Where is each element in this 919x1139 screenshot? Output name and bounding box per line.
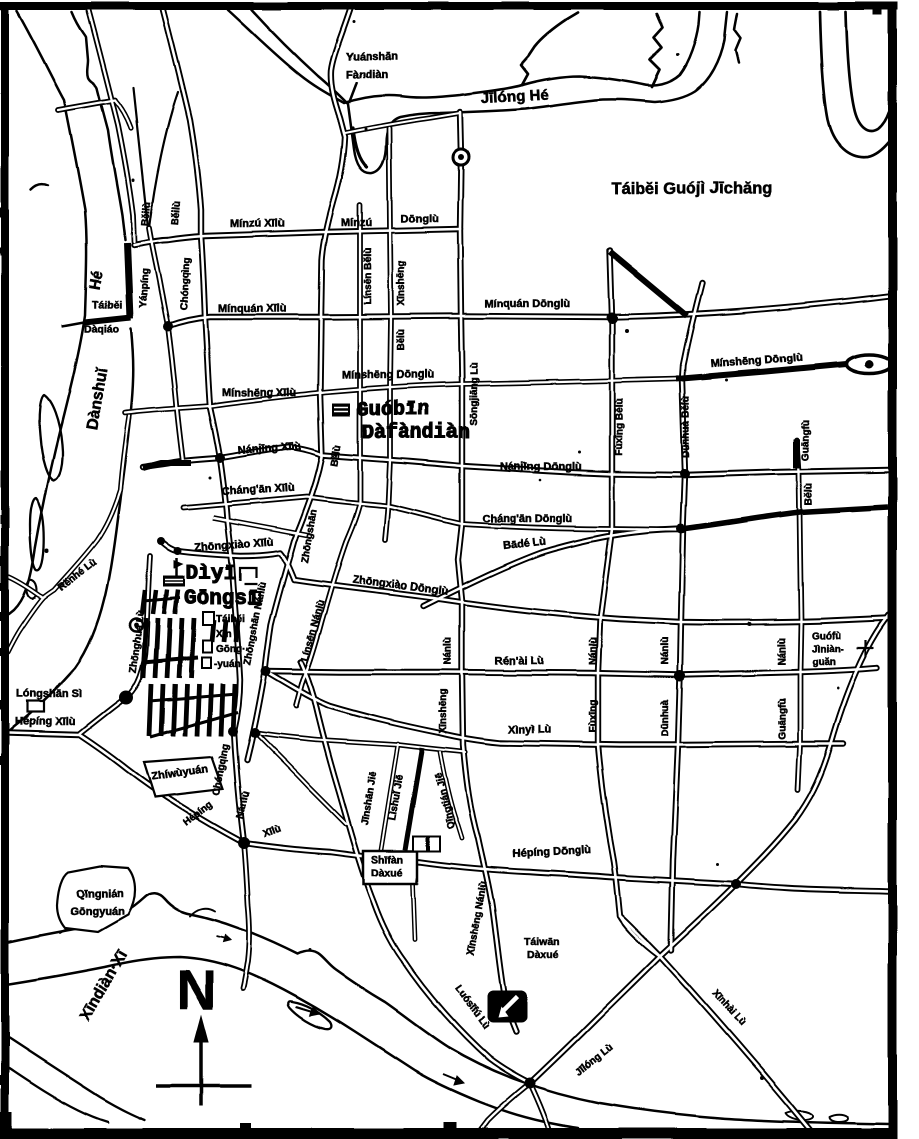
svg-text:guăn: guăn xyxy=(812,657,836,668)
svg-text:N: N xyxy=(176,958,217,1021)
svg-text:Gōngsī: Gōngsī xyxy=(184,588,260,611)
svg-text:Dìyī: Dìyī xyxy=(186,563,236,586)
svg-text:Dūnhuà Bĕlù: Dūnhuà Bĕlù xyxy=(681,396,692,458)
svg-text:Xīnshēng: Xīnshēng xyxy=(438,688,449,733)
svg-text:Línsēn Bĕlù: Línsēn Bĕlù xyxy=(363,248,374,305)
svg-text:Hé: Hé xyxy=(87,269,107,291)
svg-text:Yuánshān: Yuánshān xyxy=(346,51,398,63)
svg-text:Táibĕi Guójì Jīchăng: Táibĕi Guójì Jīchăng xyxy=(611,180,772,198)
svg-text:Bĕlù: Bĕlù xyxy=(804,483,815,505)
svg-text:Dūnhuà: Dūnhuà xyxy=(660,699,671,737)
svg-text:Nánlù: Nánlù xyxy=(588,637,599,665)
svg-text:Xīn: Xīn xyxy=(216,629,232,640)
svg-text:Fùxīng: Fùxīng xyxy=(588,700,599,733)
svg-text:Rén'ài Lù: Rén'ài Lù xyxy=(495,655,544,667)
svg-text:Táibĕi: Táibĕi xyxy=(216,614,245,625)
svg-text:Mínquán Dōnglù: Mínquán Dōnglù xyxy=(484,298,570,310)
svg-text:Dōnglù: Dōnglù xyxy=(401,213,439,225)
svg-text:Shīfàn: Shīfàn xyxy=(371,854,403,866)
svg-text:-yuán: -yuán xyxy=(214,659,241,670)
svg-text:Táibĕi: Táibĕi xyxy=(92,299,122,311)
svg-text:Fùxīng Bĕlù: Fùxīng Bĕlù xyxy=(614,398,625,455)
svg-text:Cháng'ān Dōnglù: Cháng'ān Dōnglù xyxy=(482,513,573,525)
svg-text:Bĕilù: Bĕilù xyxy=(140,201,153,226)
svg-text:Mínzú: Mínzú xyxy=(341,217,372,229)
svg-text:Guāngfù: Guāngfù xyxy=(777,698,788,739)
svg-text:Yánpíng: Yánpíng xyxy=(138,268,151,308)
svg-text:Nánlù: Nánlù xyxy=(660,637,671,665)
svg-text:Gōngyuán: Gōngyuán xyxy=(70,906,125,918)
svg-text:Mínquán Xīlù: Mínquán Xīlù xyxy=(218,303,286,315)
svg-text:Mínzú Xīlù: Mínzú Xīlù xyxy=(230,218,284,230)
svg-text:Qīngnián: Qīngnián xyxy=(76,888,124,900)
svg-text:Dàfàndiàn: Dàfàndiàn xyxy=(362,422,470,445)
svg-text:Dàqiáo: Dàqiáo xyxy=(84,323,119,335)
svg-text:Nánlù: Nánlù xyxy=(443,637,454,665)
svg-text:Sōngjiāng Lù: Sōngjiāng Lù xyxy=(469,362,480,425)
svg-text:Táiwān: Táiwān xyxy=(524,936,560,948)
svg-text:Hépíng Xīlù: Hépíng Xīlù xyxy=(15,716,76,728)
svg-text:Nánlù: Nánlù xyxy=(777,637,788,665)
svg-text:Lóngshān Sì: Lóngshān Sì xyxy=(16,688,82,700)
svg-text:Dàxué: Dàxué xyxy=(527,949,559,961)
svg-text:Guāngfù: Guāngfù xyxy=(801,419,812,460)
svg-text:Xìnyì Lù: Xìnyì Lù xyxy=(508,724,551,736)
svg-text:Bĕlù: Bĕlù xyxy=(396,329,407,351)
svg-text:Xīnshēng: Xīnshēng xyxy=(396,260,407,305)
svg-text:Jīlóng Hé: Jīlóng Hé xyxy=(480,86,548,107)
svg-text:Gōng·: Gōng· xyxy=(216,644,245,655)
svg-text:Guóbīn: Guóbīn xyxy=(357,399,429,422)
svg-text:Jìniàn-: Jìniàn- xyxy=(812,644,844,655)
svg-text:Bĕilù: Bĕilù xyxy=(170,200,183,225)
svg-text:Mínshēng Dōnglù: Mínshēng Dōnglù xyxy=(342,369,434,381)
svg-text:Guófù: Guófù xyxy=(812,631,841,642)
svg-text:Nánjīng Dōnglù: Nánjīng Dōnglù xyxy=(500,461,581,473)
svg-text:Mínshēng Xīlù: Mínshēng Xīlù xyxy=(222,387,297,399)
svg-text:Fàndiàn: Fàndiàn xyxy=(346,69,388,81)
svg-text:Dàxué: Dàxué xyxy=(371,867,403,879)
